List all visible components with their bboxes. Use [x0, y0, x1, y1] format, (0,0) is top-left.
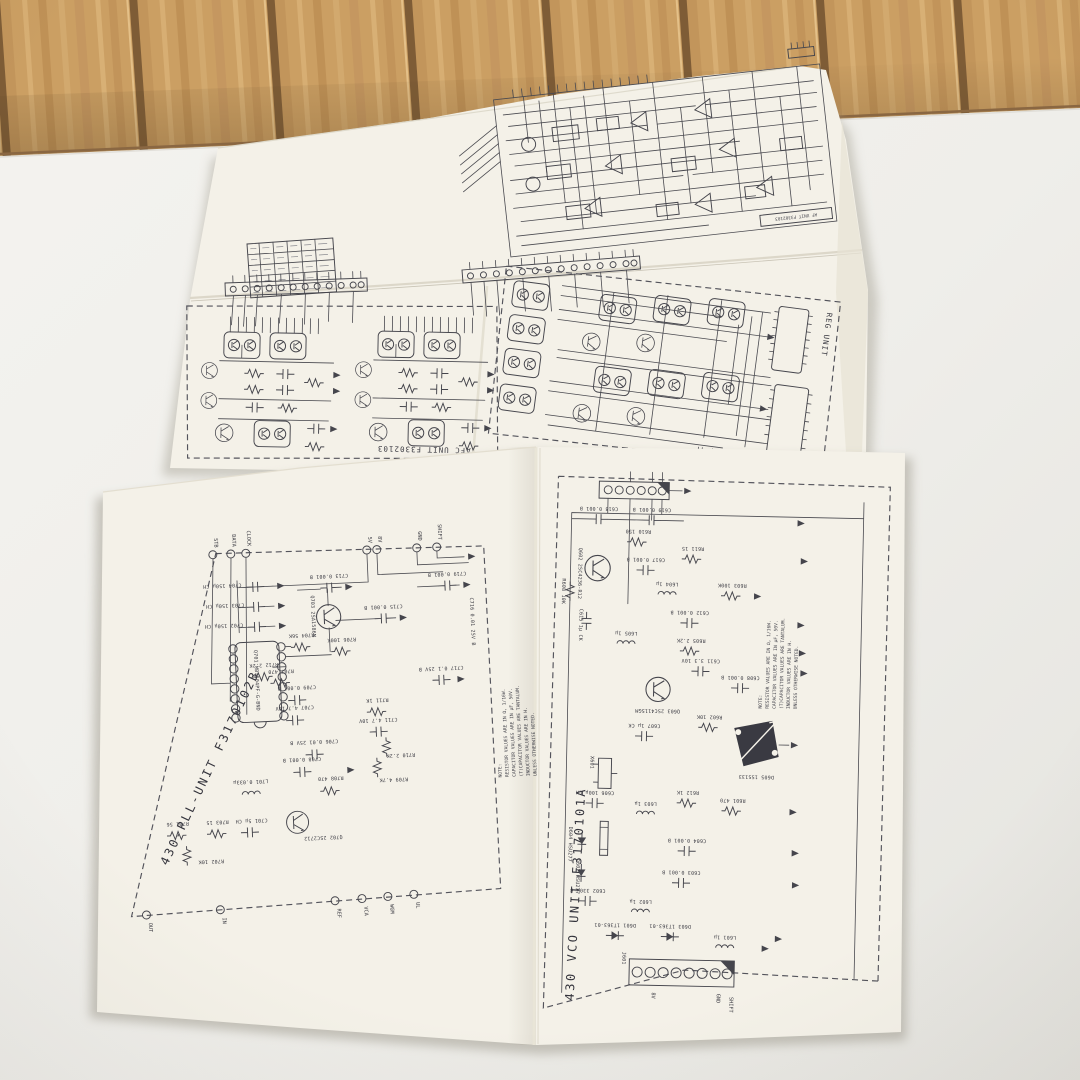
- photo-scene: AF UNIT F3302103 AFC UNIT F3302103: [0, 0, 1080, 1080]
- vignette: [0, 0, 1080, 1080]
- scene-svg: AF UNIT F3302103 AFC UNIT F3302103: [0, 0, 1080, 1080]
